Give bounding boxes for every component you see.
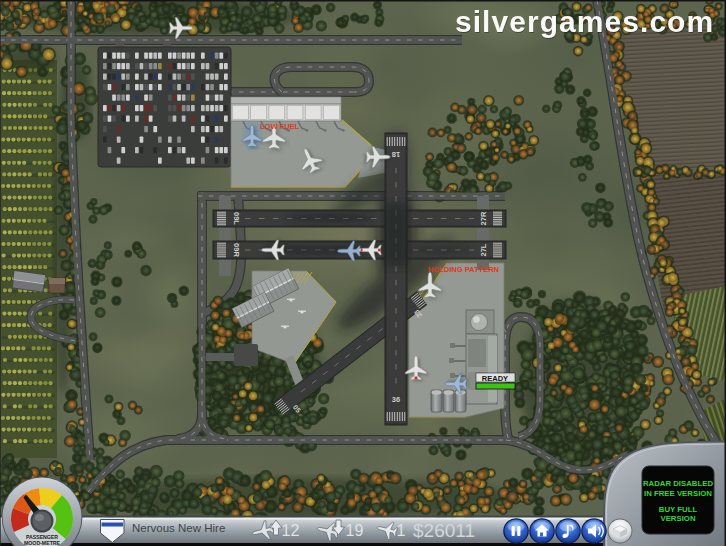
svg-text:VERSION: VERSION xyxy=(660,514,695,523)
svg-text:MOOD-METRE: MOOD-METRE xyxy=(24,540,61,546)
svg-text:Nervous New Hire: Nervous New Hire xyxy=(132,522,225,534)
svg-text:IN FREE VERSION: IN FREE VERSION xyxy=(644,489,712,498)
svg-text:12: 12 xyxy=(282,522,300,539)
svg-text:RADAR DISABLED: RADAR DISABLED xyxy=(643,479,714,488)
svg-text:19: 19 xyxy=(346,522,364,539)
svg-text:$26011: $26011 xyxy=(413,520,475,541)
svg-text:BUY FULL: BUY FULL xyxy=(659,505,698,514)
svg-text:silvergames.com: silvergames.com xyxy=(455,5,714,38)
svg-text:1: 1 xyxy=(397,522,406,539)
